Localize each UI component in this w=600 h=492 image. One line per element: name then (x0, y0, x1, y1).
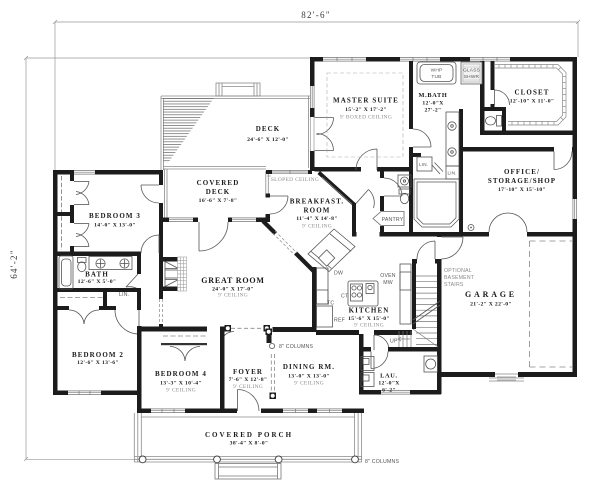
svg-text:ROOM: ROOM (304, 207, 331, 215)
svg-text:LAU.: LAU. (380, 373, 398, 380)
svg-text:6'-2": 6'-2" (382, 388, 396, 394)
svg-text:8" COLUMNS: 8" COLUMNS (365, 459, 399, 465)
svg-text:REF: REF (334, 318, 345, 324)
svg-text:13'-3" X 10'-4": 13'-3" X 10'-4" (160, 381, 202, 387)
svg-text:16'-6" X 7'-8": 16'-6" X 7'-8" (199, 198, 238, 204)
svg-text:12'-6" X 5'-0": 12'-6" X 5'-0" (78, 279, 117, 285)
svg-text:CLOSET: CLOSET (515, 89, 550, 97)
svg-text:9' CEILING: 9' CEILING (233, 384, 263, 390)
svg-text:PANTRY: PANTRY (382, 217, 404, 223)
svg-text:GREAT ROOM: GREAT ROOM (201, 276, 264, 285)
svg-text:SLOPED CEILING: SLOPED CEILING (271, 177, 319, 183)
svg-text:BATH: BATH (85, 271, 109, 279)
svg-text:12'-0"X: 12'-0"X (378, 381, 400, 387)
svg-text:14'-0" X 13'-0": 14'-0" X 13'-0" (94, 223, 136, 229)
svg-text:TUB: TUB (431, 74, 441, 80)
svg-text:LIN.: LIN. (419, 162, 428, 167)
svg-text:12'-6" X 13'-6": 12'-6" X 13'-6" (77, 360, 119, 366)
svg-text:12'-0"X: 12'-0"X (422, 101, 444, 107)
svg-text:11'-4" X 14'-8": 11'-4" X 14'-8" (296, 216, 337, 222)
svg-text:13'-0" X 13'-0": 13'-0" X 13'-0" (288, 374, 330, 380)
svg-text:82'-6": 82'-6" (301, 10, 331, 20)
svg-text:DINING RM.: DINING RM. (283, 363, 335, 371)
svg-text:9' BOXED CEILING: 9' BOXED CEILING (340, 115, 392, 121)
svg-text:M.BATH: M.BATH (418, 92, 447, 99)
svg-text:DECK: DECK (206, 188, 231, 196)
svg-text:SHWR: SHWR (464, 74, 480, 80)
svg-text:9' CEILING: 9' CEILING (302, 224, 332, 230)
svg-text:LIN.: LIN. (119, 292, 129, 298)
svg-text:7'-6" X 12'-8": 7'-6" X 12'-8" (229, 377, 268, 383)
svg-text:9' CEILING: 9' CEILING (218, 293, 248, 299)
svg-text:BEDROOM 4: BEDROOM 4 (155, 370, 207, 378)
svg-text:9' CEILING: 9' CEILING (354, 323, 384, 329)
svg-text:OPTIONAL: OPTIONAL (444, 268, 472, 274)
svg-text:GLASS: GLASS (463, 68, 480, 74)
svg-text:COVERED: COVERED (197, 179, 240, 187)
svg-text:STAIRS: STAIRS (444, 282, 464, 288)
svg-text:64'-2": 64'-2" (9, 249, 19, 279)
svg-text:STORAGE/SHOP: STORAGE/SHOP (488, 177, 556, 185)
svg-text:38'-4" X 8'-0": 38'-4" X 8'-0" (230, 441, 269, 447)
svg-text:FOYER: FOYER (233, 368, 263, 376)
svg-text:BASEMENT: BASEMENT (444, 275, 475, 281)
svg-text:UP: UP (390, 339, 398, 345)
svg-text:KITCHEN: KITCHEN (349, 307, 390, 315)
svg-text:8" COLUMNS: 8" COLUMNS (279, 344, 313, 350)
svg-text:BEDROOM 3: BEDROOM 3 (89, 212, 141, 220)
svg-text:9' CEILING: 9' CEILING (294, 381, 324, 387)
svg-text:17'-10" X 15'-10": 17'-10" X 15'-10" (498, 187, 546, 193)
svg-text:MASTER SUITE: MASTER SUITE (333, 97, 399, 105)
svg-text:OFFICE/: OFFICE/ (504, 168, 540, 176)
svg-text:WHP: WHP (431, 68, 443, 74)
svg-text:COVERED PORCH: COVERED PORCH (205, 431, 293, 439)
svg-text:DW: DW (334, 271, 343, 277)
svg-text:21'-2" X 22'-0": 21'-2" X 22'-0" (470, 302, 512, 308)
svg-text:27'-2": 27'-2" (425, 108, 442, 114)
svg-text:15'-2" X 17'-2": 15'-2" X 17'-2" (345, 107, 387, 113)
svg-text:15'-6" X 15'-0": 15'-6" X 15'-0" (348, 316, 390, 322)
svg-text:GARAGE: GARAGE (465, 290, 517, 299)
svg-text:MW: MW (383, 280, 393, 286)
svg-text:LIN.: LIN. (448, 171, 457, 176)
svg-text:24'-6" X 12'-0": 24'-6" X 12'-0" (247, 137, 289, 143)
svg-text:BREAKFAST.: BREAKFAST. (290, 198, 345, 206)
svg-text:9' CEILING: 9' CEILING (166, 388, 196, 394)
svg-text:BEDROOM 2: BEDROOM 2 (72, 351, 124, 359)
svg-text:DECK: DECK (256, 125, 281, 133)
svg-text:CT: CT (341, 294, 349, 300)
svg-text:12'-10" X 11'-0": 12'-10" X 11'-0" (510, 99, 555, 105)
svg-text:OVEN: OVEN (380, 273, 396, 279)
